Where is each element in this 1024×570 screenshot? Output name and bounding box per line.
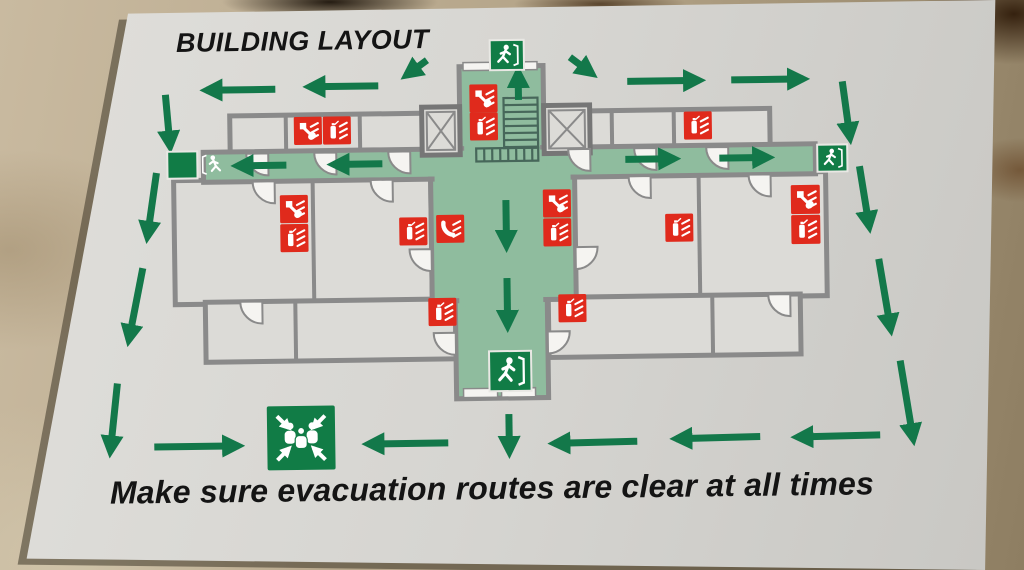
emergency-exit-sign-right (817, 144, 847, 171)
fire-alarm-call-point-sign (294, 117, 322, 145)
sign-plate (490, 40, 524, 70)
route-arrow (509, 414, 510, 452)
route-arrow (154, 446, 238, 447)
emergency-exit-sign-bottom (489, 351, 532, 392)
route-arrow (206, 89, 275, 90)
person-body (285, 431, 296, 444)
sign-plate (791, 215, 820, 244)
person-head (298, 427, 305, 434)
route-arrow (900, 360, 913, 439)
route-arrow (554, 441, 637, 443)
extinguisher-handle (479, 119, 482, 121)
route-arrow (406, 60, 427, 75)
route-arrow (368, 443, 448, 444)
inner-wall (674, 110, 675, 148)
route-arrow (627, 80, 699, 81)
route-arrow (570, 57, 592, 74)
elevator-shaft (544, 105, 591, 154)
route-arrow (859, 166, 869, 227)
route-arrow (731, 79, 803, 80)
fire-extinguisher-sign (428, 298, 456, 326)
extinguisher-handle (437, 305, 440, 307)
route-arrow (128, 268, 144, 340)
route-arrow (879, 259, 891, 330)
person-body (307, 430, 318, 443)
fire-extinguisher-sign (558, 294, 586, 322)
corridor-arrow (333, 164, 382, 165)
sign-plate (399, 217, 427, 245)
fire-alarm-call-point-sign (791, 185, 820, 214)
sign-plate (280, 224, 308, 252)
assembly-point-sign (267, 405, 336, 470)
sign-plate (817, 144, 847, 171)
inner-wall (699, 173, 701, 297)
fire-extinguisher-sign (684, 111, 712, 139)
elevator-shaft (422, 107, 461, 156)
evacuation-plan-photo: BUILDING LAYOUT Make sure evacuation rou… (0, 0, 1024, 570)
fire-extinguisher-sign (665, 213, 693, 241)
inner-wall (712, 295, 713, 355)
fire-extinguisher-sign (399, 217, 427, 245)
corridor-arrow (719, 157, 768, 158)
extinguisher-body (407, 227, 413, 240)
extinguisher-handle (674, 220, 677, 222)
sign-plate (428, 298, 456, 326)
extinguisher-body (799, 225, 805, 238)
extinguisher-handle (800, 222, 803, 224)
inner-wall (286, 115, 287, 153)
sign-board: BUILDING LAYOUT Make sure evacuation rou… (0, 0, 1024, 570)
route-arrow (842, 81, 850, 138)
inner-wall (313, 179, 315, 303)
extinguisher-body (673, 223, 679, 236)
sign-plate (167, 151, 197, 178)
extinguisher-handle (567, 301, 570, 303)
inner-wall (612, 111, 613, 149)
emergency-exit-sign-top (490, 40, 524, 70)
sign-plate (543, 218, 571, 246)
sign-plate (665, 213, 693, 241)
fire-telephone-sign (436, 215, 464, 243)
plan-root (105, 34, 914, 472)
fire-extinguisher-sign (280, 224, 308, 252)
route-arrow (797, 435, 880, 437)
route-arrow (309, 86, 378, 87)
extinguisher-body (551, 228, 557, 241)
extinguisher-body (330, 126, 336, 139)
route-arrow (146, 173, 157, 237)
inner-wall (295, 301, 296, 361)
extinguisher-body (288, 234, 294, 247)
person-body (295, 435, 307, 448)
sign-plate (323, 116, 351, 144)
fire-extinguisher-sign (543, 218, 571, 246)
extinguisher-handle (289, 231, 292, 233)
fire-extinguisher-sign (791, 215, 820, 244)
extinguisher-handle (693, 118, 696, 120)
fire-alarm-call-point-sign (280, 195, 308, 223)
corridor-junction (459, 294, 543, 307)
corridor-arrow (625, 159, 674, 160)
sign-plate (489, 351, 532, 392)
page-title: BUILDING LAYOUT (176, 24, 429, 59)
corridor-arrow (506, 200, 507, 246)
fire-extinguisher-sign (323, 116, 351, 144)
route-arrow (165, 95, 170, 147)
corridor-arrow (237, 165, 286, 166)
extinguisher-handle (332, 123, 335, 125)
sign-plate (684, 111, 712, 139)
extinguisher-handle (408, 224, 411, 226)
corridor-arrow (507, 278, 508, 326)
extinguisher-body (436, 307, 442, 320)
sign-plate (436, 215, 464, 243)
fire-extinguisher-sign (470, 112, 498, 140)
extinguisher-body (477, 122, 483, 135)
route-arrow (676, 437, 760, 439)
extinguisher-body (566, 304, 572, 317)
extinguisher-handle (552, 225, 555, 227)
sign-plate (558, 294, 586, 322)
fire-alarm-call-point-sign (469, 84, 497, 112)
sign-plate (470, 112, 498, 140)
route-arrow (109, 384, 118, 452)
corridor-junction (434, 171, 570, 185)
extinguisher-body (691, 121, 697, 134)
inner-wall (360, 114, 361, 152)
fire-alarm-call-point-sign (543, 189, 571, 217)
